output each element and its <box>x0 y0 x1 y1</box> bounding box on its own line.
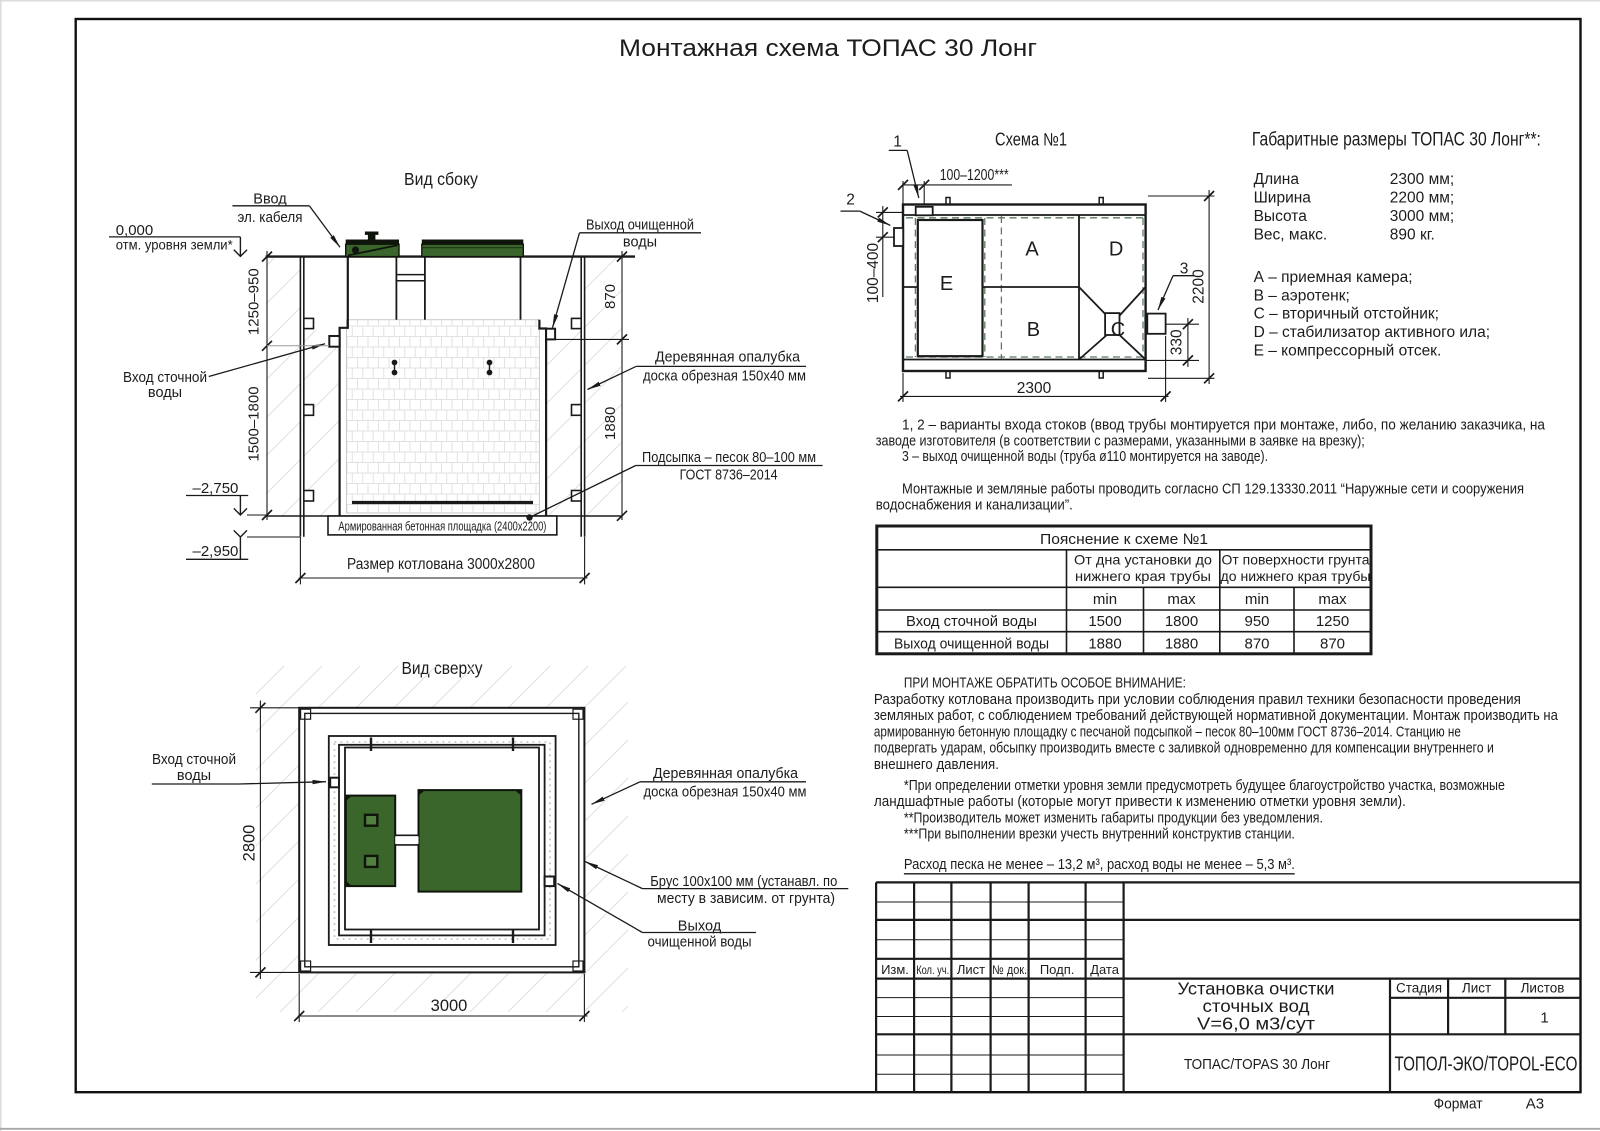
svg-text:Дата: Дата <box>1090 962 1120 977</box>
svg-text:воды: воды <box>148 385 182 401</box>
svg-text:1, 2 – варианты входа стоков: 1, 2 – варианты входа стоков (ввод трубы… <box>902 417 1546 434</box>
svg-text:Листов: Листов <box>1521 981 1565 996</box>
svg-text:1880: 1880 <box>602 407 619 440</box>
svg-text:Е – компрессорный отсек.: Е – компрессорный отсек. <box>1254 343 1442 360</box>
svg-text:1: 1 <box>893 133 902 150</box>
svg-text:1800: 1800 <box>1165 613 1198 630</box>
svg-text:1880: 1880 <box>1165 635 1198 652</box>
svg-text:2300 мм;: 2300 мм; <box>1390 171 1454 188</box>
svg-text:–2,950: –2,950 <box>193 543 239 560</box>
svg-text:Подп.: Подп. <box>1040 962 1075 977</box>
svg-text:С – вторичный отстойник;: С – вторичный отстойник; <box>1254 306 1439 323</box>
svg-text:От поверхности грунта: От поверхности грунта <box>1222 552 1370 568</box>
svg-text:Выход очищенной воды: Выход очищенной воды <box>894 635 1049 652</box>
svg-text:1500: 1500 <box>1088 613 1121 630</box>
svg-text:Вид сбоку: Вид сбоку <box>404 169 478 189</box>
svg-text:внешнего давления.: внешнего давления. <box>874 756 999 773</box>
svg-text:Размер котлована 3000х2800: Размер котлована 3000х2800 <box>347 556 535 573</box>
svg-text:D: D <box>1109 239 1123 261</box>
svg-text:E: E <box>940 273 953 295</box>
svg-text:Монтажная схема ТОПАС 30 Лонг: Монтажная схема ТОПАС 30 Лонг <box>619 35 1037 62</box>
svg-text:заводе изготовителя (в соответ: заводе изготовителя (в соответствии с ра… <box>876 433 1365 450</box>
svg-text:3000: 3000 <box>431 997 468 1015</box>
svg-text:В – аэротенк;: В – аэротенк; <box>1254 288 1350 305</box>
svg-text:Ввод: Ввод <box>253 191 287 207</box>
svg-text:2200: 2200 <box>1191 269 1208 304</box>
svg-text:Вход сточной: Вход сточной <box>123 370 207 386</box>
svg-text:–2,750: –2,750 <box>193 480 239 497</box>
svg-text:доска обрезная 150х40 мм: доска обрезная 150х40 мм <box>644 784 807 800</box>
svg-text:3: 3 <box>1180 260 1189 277</box>
svg-text:870: 870 <box>1244 635 1269 652</box>
svg-text:Изм.: Изм. <box>881 962 909 977</box>
svg-text:Разработку котлована производи: Разработку котлована производить при усл… <box>874 691 1521 708</box>
svg-text:Выход очищенной: Выход очищенной <box>586 217 694 233</box>
svg-text:От дна установки до: От дна установки до <box>1074 552 1212 568</box>
svg-text:нижнего края трубы: нижнего края трубы <box>1075 568 1211 584</box>
svg-text:330: 330 <box>1169 329 1186 355</box>
svg-text:3 – выход очищенной воды (труб: 3 – выход очищенной воды (труба ø110 мон… <box>902 448 1268 465</box>
svg-text:**Производитель может изменить: **Производитель может изменить габариты … <box>904 809 1323 826</box>
svg-text:А3: А3 <box>1526 1096 1544 1113</box>
svg-text:Ширина: Ширина <box>1254 190 1312 207</box>
svg-text:2200 мм;: 2200 мм; <box>1390 190 1454 207</box>
svg-text:Вход сточной воды: Вход сточной воды <box>906 613 1037 630</box>
svg-text:Деревянная опалубка: Деревянная опалубка <box>653 766 799 782</box>
svg-text:100–1200***: 100–1200*** <box>940 167 1009 184</box>
svg-text:950: 950 <box>1244 613 1269 630</box>
svg-text:Стадия: Стадия <box>1396 981 1442 996</box>
svg-text:max: max <box>1167 591 1196 608</box>
svg-text:воды: воды <box>623 234 657 250</box>
svg-text:до нижнего края трубы: до нижнего края трубы <box>1221 568 1371 584</box>
svg-text:Монтажные и земляные работы пр: Монтажные и земляные работы проводить со… <box>902 481 1524 498</box>
svg-text:C: C <box>1111 319 1125 341</box>
svg-text:2: 2 <box>846 191 855 208</box>
svg-text:А – приемная камера;: А – приемная камера; <box>1254 269 1413 286</box>
svg-text:Деревянная опалубка: Деревянная опалубка <box>655 350 801 366</box>
svg-text:ландшафтные работы (которые мо: ландшафтные работы (которые могут привес… <box>874 793 1406 810</box>
svg-text:1500–1800: 1500–1800 <box>246 386 263 461</box>
svg-text:V=6,0 м3/сут: V=6,0 м3/сут <box>1197 1014 1315 1034</box>
svg-text:***При выполнении врезки учест: ***При выполнении врезки учесть внутренн… <box>904 826 1295 843</box>
svg-text:армированную бетонную площадку: армированную бетонную площадку с песчано… <box>874 723 1461 740</box>
svg-text:890 кг.: 890 кг. <box>1390 227 1435 244</box>
svg-text:эл. кабеля: эл. кабеля <box>238 210 303 226</box>
svg-text:min: min <box>1245 591 1269 608</box>
svg-text:ПРИ МОНТАЖЕ ОБРАТИТЬ ОСОБОЕ ВН: ПРИ МОНТАЖЕ ОБРАТИТЬ ОСОБОЕ ВНИМАНИЕ: <box>904 675 1186 692</box>
svg-text:Высота: Высота <box>1254 208 1308 225</box>
svg-text:1250–950: 1250–950 <box>246 268 263 335</box>
svg-text:Расход песка не менее – 13,2 м: Расход песка не менее – 13,2 м³, расход … <box>904 856 1295 873</box>
svg-text:Брус 100х100 мм (устанавл. по: Брус 100х100 мм (устанавл. по <box>650 874 837 890</box>
svg-text:Пояснение к схеме №1: Пояснение к схеме №1 <box>1040 531 1208 548</box>
svg-text:Длина: Длина <box>1254 171 1300 188</box>
svg-text:3000 мм;: 3000 мм; <box>1390 208 1454 225</box>
svg-text:Лист: Лист <box>957 962 985 977</box>
svg-text:Вес, макс.: Вес, макс. <box>1254 227 1328 244</box>
svg-text:Подсыпка – песок 80–100 мм: Подсыпка – песок 80–100 мм <box>642 450 816 466</box>
svg-text:Вход сточной: Вход сточной <box>152 752 236 768</box>
svg-text:A: A <box>1025 238 1039 260</box>
svg-text:ГОСТ 8736–2014: ГОСТ 8736–2014 <box>680 467 778 483</box>
svg-text:воды: воды <box>177 768 211 784</box>
svg-text:D – стабилизатор активного ила: D – стабилизатор активного ила; <box>1254 324 1490 341</box>
svg-text:Кол. уч.: Кол. уч. <box>916 965 949 977</box>
svg-text:870: 870 <box>602 284 619 309</box>
svg-text:очищенной воды: очищенной воды <box>648 935 752 951</box>
svg-text:Армированная бетонная площадка: Армированная бетонная площадка (2400х220… <box>338 520 546 534</box>
svg-text:Габаритные размеры ТОПАС 30 Ло: Габаритные размеры ТОПАС 30 Лонг**: <box>1252 129 1541 150</box>
svg-text:Лист: Лист <box>1462 981 1491 996</box>
svg-text:№ док.: № док. <box>992 963 1027 977</box>
svg-text:min: min <box>1093 591 1117 608</box>
svg-text:100–400: 100–400 <box>865 242 882 303</box>
svg-text:Формат: Формат <box>1434 1096 1483 1113</box>
svg-text:водоснабжения и канализации”.: водоснабжения и канализации”. <box>876 497 1073 514</box>
svg-text:ТОПАС/TOPAS 30 Лонг: ТОПАС/TOPAS 30 Лонг <box>1184 1057 1330 1073</box>
svg-text:земляных работ, с соблюдением: земляных работ, с соблюдением требований… <box>874 707 1559 724</box>
svg-text:max: max <box>1318 591 1347 608</box>
svg-text:*При определении отметки уровн: *При определении отметки уровня земли пр… <box>904 777 1505 794</box>
svg-text:B: B <box>1027 319 1040 341</box>
svg-text:2800: 2800 <box>241 825 259 862</box>
svg-text:отм. уровня земли*: отм. уровня земли* <box>116 237 234 253</box>
svg-text:доска обрезная 150х40 мм: доска обрезная 150х40 мм <box>643 369 806 385</box>
svg-text:2300: 2300 <box>1017 380 1052 397</box>
svg-text:1880: 1880 <box>1088 635 1121 652</box>
svg-text:1250: 1250 <box>1316 613 1349 630</box>
svg-text:месту в зависим. от грунта): месту в зависим. от грунта) <box>657 891 835 907</box>
svg-text:Схема №1: Схема №1 <box>995 130 1067 150</box>
svg-text:1: 1 <box>1540 1010 1548 1027</box>
svg-text:ТОПОЛ-ЭКО/TOPOL-ECO: ТОПОЛ-ЭКО/TOPOL-ECO <box>1395 1054 1578 1076</box>
svg-text:подвергать ударам, обсыпку про: подвергать ударам, обсыпку производить в… <box>874 740 1494 757</box>
svg-text:870: 870 <box>1320 635 1345 652</box>
